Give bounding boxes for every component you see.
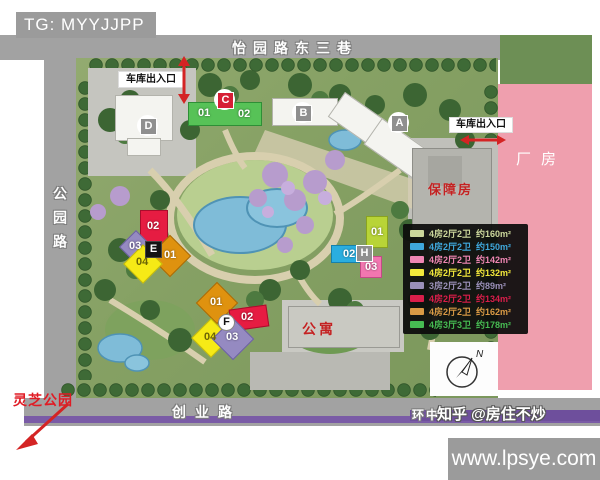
- building-h-unit-01: 01: [371, 226, 383, 238]
- legend-area: 约89m²: [476, 279, 506, 292]
- legend-row: 4房3厅3卫 约178m²: [403, 318, 528, 331]
- site-watermark: www.lpsye.com: [448, 438, 600, 480]
- legend-label: 4房3厅3卫: [429, 318, 471, 331]
- building-c-badge: C: [217, 92, 234, 109]
- garage-entrance-label-right: 车库出入口: [449, 117, 513, 133]
- road-label-bottom: 创业路: [172, 402, 241, 422]
- factory-label: 厂房: [516, 148, 566, 169]
- legend-swatch: [410, 282, 424, 289]
- building-e-unit-02: 02: [147, 220, 159, 232]
- legend-label: 4房2厅2卫: [429, 292, 471, 305]
- legend-label: 4房2厅2卫: [429, 266, 471, 279]
- legend-row: 3房2厅2卫 约89m²: [403, 279, 528, 292]
- building-d-badge: D: [140, 118, 157, 135]
- garage-arrow-top-icon: [176, 54, 192, 106]
- legend-swatch: [410, 243, 424, 250]
- compass-icon: N: [436, 344, 492, 394]
- building-f-unit-02: 02: [241, 311, 253, 323]
- legend-swatch: [410, 295, 424, 302]
- legend-row: 4房2厅2卫 约160m²: [403, 227, 528, 240]
- building-f-unit-04: 04: [204, 331, 216, 343]
- legend-swatch: [410, 321, 424, 328]
- building-c-unit-01: 01: [198, 107, 210, 119]
- building-h-unit-02: 02: [343, 248, 355, 260]
- building-c-unit-02: 02: [238, 108, 250, 120]
- building-h-unit-03: 03: [365, 261, 377, 273]
- building-e-unit-01: 01: [164, 249, 176, 261]
- building-a-badge: A: [391, 115, 408, 132]
- building-b-badge: B: [295, 105, 312, 122]
- building-f-badge: F: [218, 314, 235, 331]
- green-top-right: [500, 35, 592, 85]
- legend-swatch: [410, 230, 424, 237]
- legend-area: 约162m²: [476, 305, 511, 318]
- building-e-unit-03: 03: [129, 240, 141, 252]
- legend-row: 4房2厅2卫 约142m²: [403, 253, 528, 266]
- garage-entrance-label-top: 车库出入口: [118, 71, 184, 88]
- garage-arrow-right-icon: [458, 133, 508, 147]
- tree-row-bottom: [60, 382, 436, 398]
- legend-label: 4房2厅2卫: [429, 227, 471, 240]
- site-plan-page: { "header": { "tg_badge": "TG: MYYJJPP" …: [0, 0, 600, 480]
- building-d-wing: [127, 138, 161, 156]
- legend-row: 4房2厅2卫 约134m²: [403, 292, 528, 305]
- legend-panel: 4房2厅2卫 约160m² 4房2厅2卫 约150m² 4房2厅2卫 约142m…: [403, 224, 528, 334]
- tree-row-left: [77, 80, 93, 380]
- welfare-housing-label: 保障房: [428, 179, 473, 198]
- legend-label: 4房2厅2卫: [429, 305, 471, 318]
- legend-swatch: [410, 269, 424, 276]
- building-h-badge: H: [356, 245, 373, 262]
- legend-area: 约142m²: [476, 253, 511, 266]
- apartment-label: 公寓: [302, 319, 336, 339]
- legend-row: 4房2厅2卫 约162m²: [403, 305, 528, 318]
- legend-area: 约132m²: [476, 266, 511, 279]
- legend-area: 约134m²: [476, 292, 511, 305]
- road-label-bottom-right: 环中: [412, 406, 440, 423]
- legend-swatch: [410, 308, 424, 315]
- building-f-unit-01: 01: [210, 296, 222, 308]
- building-f-unit-03: 03: [226, 331, 238, 343]
- tg-badge: TG: MYYJJPP: [16, 12, 156, 38]
- legend-swatch: [410, 256, 424, 263]
- road-label-left: 公园路: [50, 186, 70, 258]
- legend-area: 约150m²: [476, 240, 511, 253]
- legend-row: 4房2厅2卫 约150m²: [403, 240, 528, 253]
- legend-area: 约178m²: [476, 318, 511, 331]
- legend-label: 4房2厅2卫: [429, 253, 471, 266]
- lingzhi-park-arrow-icon: [10, 398, 80, 454]
- legend-label: 4房2厅2卫: [429, 240, 471, 253]
- building-e-badge: E: [145, 241, 162, 258]
- legend-row: 4房2厅2卫 约132m²: [403, 266, 528, 279]
- legend-label: 3房2厅2卫: [429, 279, 471, 292]
- legend-area: 约160m²: [476, 227, 511, 240]
- zhihu-watermark: 知乎 @房住不炒: [437, 403, 546, 424]
- compass-n-label: N: [476, 349, 484, 360]
- road-label-top: 怡园路东三巷: [232, 38, 358, 58]
